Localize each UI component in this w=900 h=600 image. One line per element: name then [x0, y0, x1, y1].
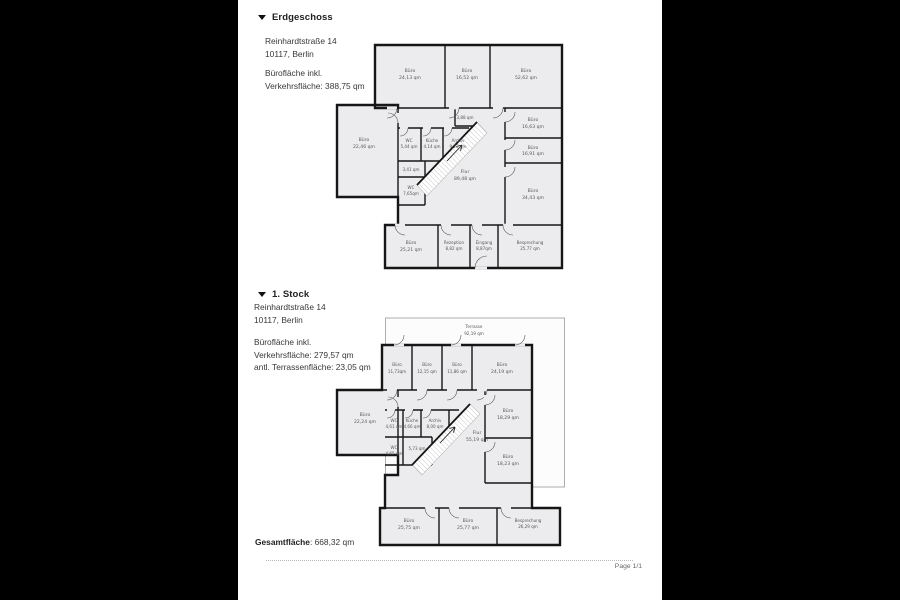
room-area: 22,24 qm [354, 419, 377, 425]
address-block: Reinhardtstraße 14 10117, Berlin [265, 35, 337, 60]
room-name: Küche [426, 138, 439, 143]
room-area: 8,87qm [476, 246, 492, 251]
room-area: 4,65 qm [385, 451, 402, 456]
room-area: 16,91 qm [522, 151, 545, 157]
room-area: 89,48 qm [454, 176, 477, 182]
room-area: 24,13 qm [399, 75, 422, 81]
room-name: WC [406, 138, 413, 143]
room-name: Rezeption [444, 240, 465, 245]
room-name: Büro [406, 240, 417, 246]
room-area: 16,63 qm [522, 124, 545, 130]
floorplan-erdgeschoss: Büro 24,13 qm Büro 16,52 qm Büro 52,62 q… [337, 43, 573, 272]
viewer-canvas: Erdgeschoss Reinhardtstraße 14 10117, Be… [0, 0, 900, 600]
room-area: 4,61 qm [385, 424, 402, 429]
room-name: Büro [503, 454, 514, 460]
room-name: WC [391, 418, 398, 423]
section-header-erdgeschoss: Erdgeschoss [258, 12, 333, 23]
total-area-value: : 668,32 qm [310, 537, 354, 547]
room-name: Flur [461, 169, 470, 175]
address-block: Reinhardtstraße 14 10117, Berlin [254, 301, 326, 326]
room-area: 92,19 qm [464, 331, 484, 336]
room-area: 52,62 qm [515, 75, 538, 81]
room-name: Büro [503, 408, 514, 414]
room-area: 18,29 qm [497, 415, 520, 421]
room-area: 8,82 qm [445, 246, 462, 251]
total-area: Gesamtfläche: 668,32 qm [255, 537, 354, 547]
room-area: 5,73 qm [408, 446, 425, 451]
collapse-triangle-icon[interactable] [258, 292, 266, 297]
room-name: Büro [528, 145, 539, 151]
address-line: 10117, Berlin [265, 48, 337, 61]
room-name: Büro [528, 188, 539, 194]
room-area: 4,14 qm [423, 144, 440, 149]
room-area: 24,19 qm [491, 369, 514, 375]
room-name: Büro [360, 412, 371, 418]
footer-divider [266, 560, 633, 561]
room-name: Büro [463, 518, 474, 524]
address-line: 10117, Berlin [254, 314, 326, 327]
room-name: Besprechung [517, 240, 544, 245]
section-header-1-stock: 1. Stock [258, 289, 309, 300]
room-name: Büro [462, 68, 473, 74]
floor-title: Erdgeschoss [272, 12, 333, 23]
room-area: 22,46 qm [353, 144, 376, 150]
room-name: Büro [452, 362, 462, 367]
floor-title: 1. Stock [272, 289, 309, 300]
room-area: 8,00 qm [426, 424, 443, 429]
room-name: Archiv [429, 418, 442, 423]
room-area: 11,86 qm [447, 369, 467, 374]
room-area: 5,44 qm [400, 144, 417, 149]
room-name: Büro [528, 117, 539, 123]
floorplan-1-stock: Terrasse 92,19 qm Büro 11,73qm Büro 12,1… [337, 315, 573, 545]
room-area: 3,41 qm [402, 167, 419, 172]
room-area: 25,77 qm [520, 246, 540, 251]
room-name: Terrasse [465, 324, 483, 329]
page-indicator: Page 1/1 [615, 563, 642, 570]
room-name: Büro [497, 362, 508, 368]
address-line: Reinhardtstraße 14 [254, 301, 326, 314]
room-area: 25,77 qm [457, 525, 480, 531]
room-name: Küche [406, 418, 419, 423]
room-area: 4,66 qm [403, 424, 420, 429]
room-area: 25,75 qm [398, 525, 421, 531]
room-area: 25,21 qm [400, 247, 423, 253]
room-name: Eingang [476, 240, 493, 245]
room-name: Besprechung [515, 518, 542, 523]
room-name: Büro [359, 137, 370, 143]
room-area: 9,23 qm [449, 144, 466, 149]
room-area: 7,65qm [403, 191, 419, 196]
room-name: Büro [392, 362, 402, 367]
room-name: Büro [422, 362, 432, 367]
room-name: WC [408, 185, 415, 190]
room-name: Archiv [452, 138, 465, 143]
room-name: Flur [473, 430, 482, 436]
room-name: Büro [521, 68, 532, 74]
room-area: 34,43 qm [522, 195, 545, 201]
room-name: WC [391, 445, 398, 450]
collapse-triangle-icon[interactable] [258, 15, 266, 20]
room-area: 55,19 qm [466, 437, 489, 443]
room-area: 12,15 qm [417, 369, 437, 374]
room-area: 11,73qm [388, 369, 406, 374]
room-name: Büro [405, 68, 416, 74]
room-area: 26,29 qm [518, 524, 538, 529]
room-area: 16,52 qm [456, 75, 479, 81]
address-line: Reinhardtstraße 14 [265, 35, 337, 48]
total-area-label: Gesamtfläche [255, 537, 310, 547]
room-area: 3,88 qm [456, 115, 473, 120]
document-page: Erdgeschoss Reinhardtstraße 14 10117, Be… [238, 0, 662, 600]
room-name: Büro [404, 518, 415, 524]
room-area: 18,23 qm [497, 461, 520, 467]
